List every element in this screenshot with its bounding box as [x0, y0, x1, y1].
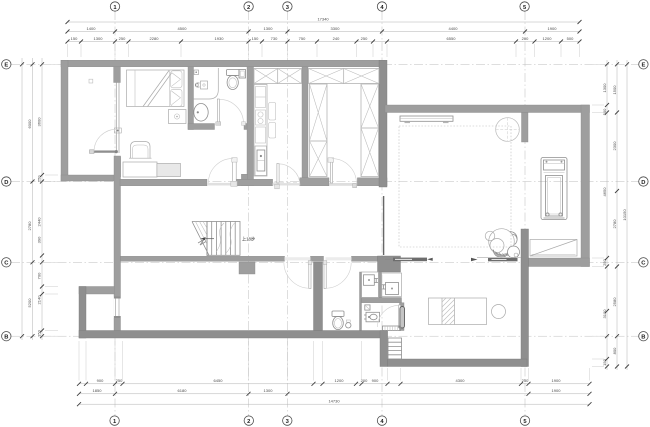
svg-text:17340: 17340	[317, 16, 329, 21]
svg-text:1200: 1200	[543, 36, 553, 41]
svg-text:4650: 4650	[602, 187, 607, 197]
svg-text:250: 250	[119, 36, 126, 41]
svg-text:6180: 6180	[178, 388, 188, 393]
svg-text:1930: 1930	[215, 36, 225, 41]
svg-text:1300: 1300	[94, 36, 104, 41]
svg-text:4500: 4500	[178, 26, 188, 31]
svg-text:1300: 1300	[264, 388, 274, 393]
svg-text:150: 150	[71, 36, 78, 41]
svg-text:240: 240	[333, 36, 340, 41]
svg-text:3100: 3100	[602, 309, 607, 319]
svg-text:3300: 3300	[331, 26, 341, 31]
svg-text:1500: 1500	[612, 85, 617, 95]
svg-text:10150: 10150	[622, 209, 627, 221]
svg-text:5200: 5200	[27, 298, 32, 308]
svg-text:500: 500	[602, 108, 607, 115]
svg-text:3600: 3600	[37, 117, 42, 127]
svg-text:750: 750	[299, 36, 306, 41]
svg-text:1200: 1200	[335, 378, 345, 383]
svg-text:4300: 4300	[456, 378, 466, 383]
svg-text:2780: 2780	[612, 219, 617, 229]
svg-text:390: 390	[37, 236, 42, 243]
svg-text:1900: 1900	[548, 26, 558, 31]
svg-text:250: 250	[522, 378, 529, 383]
svg-text:150: 150	[252, 36, 259, 41]
svg-text:900: 900	[372, 378, 379, 383]
svg-text:2280: 2280	[150, 36, 160, 41]
svg-text:1850: 1850	[93, 388, 103, 393]
svg-text:800: 800	[612, 347, 617, 354]
svg-text:6000: 6000	[27, 119, 32, 129]
svg-text:B: B	[641, 335, 645, 341]
svg-text:700: 700	[37, 272, 42, 279]
svg-text:2: 2	[247, 419, 250, 425]
svg-text:E: E	[641, 63, 645, 69]
svg-text:2580: 2580	[612, 297, 617, 307]
svg-text:D: D	[641, 180, 645, 186]
svg-text:1300: 1300	[602, 83, 607, 93]
svg-text:B: B	[4, 335, 8, 341]
svg-text:上18步: 上18步	[242, 235, 256, 242]
svg-text:200: 200	[361, 378, 368, 383]
svg-text:2440: 2440	[37, 217, 42, 227]
svg-text:2780: 2780	[27, 221, 32, 231]
svg-text:250: 250	[116, 378, 123, 383]
svg-text:D: D	[4, 180, 8, 186]
svg-text:200: 200	[522, 36, 529, 41]
svg-text:900: 900	[97, 378, 104, 383]
svg-text:E: E	[4, 63, 8, 69]
svg-text:1900: 1900	[552, 378, 562, 383]
svg-text:14730: 14730	[328, 399, 340, 404]
svg-text:2300: 2300	[612, 141, 617, 151]
svg-text:1900: 1900	[552, 388, 562, 393]
svg-text:150: 150	[37, 329, 42, 336]
svg-text:730: 730	[271, 36, 278, 41]
svg-text:4400: 4400	[449, 26, 459, 31]
svg-text:6550: 6550	[447, 36, 457, 41]
svg-text:500: 500	[567, 36, 574, 41]
svg-text:1300: 1300	[264, 26, 274, 31]
svg-text:1400: 1400	[87, 26, 97, 31]
svg-text:2: 2	[247, 5, 250, 11]
svg-text:250: 250	[361, 36, 368, 41]
svg-text:250: 250	[37, 175, 42, 182]
svg-text:2140: 2140	[37, 295, 42, 305]
svg-text:150: 150	[602, 358, 607, 365]
svg-text:250: 250	[602, 258, 607, 265]
svg-text:6450: 6450	[214, 378, 224, 383]
